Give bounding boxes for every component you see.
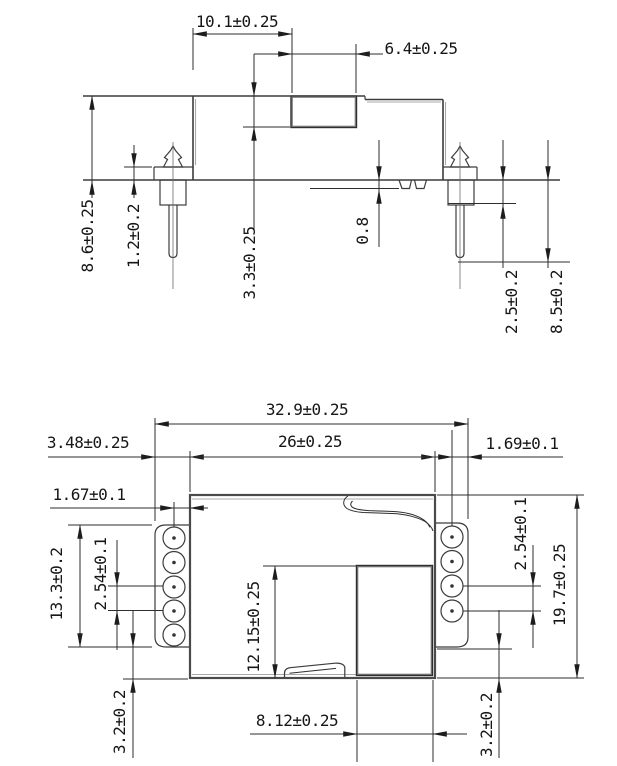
- dim-label-hole-to-edge-right: 1.69±0.1: [485, 434, 558, 453]
- dim-label-tab-span: 13.3±0.2: [47, 547, 66, 620]
- dim-label-pin-pitch-left: 2.54±0.1: [91, 537, 110, 610]
- top-recess-block: [292, 97, 357, 128]
- dim-label-body-depth: 19.7±0.25: [550, 544, 569, 626]
- drawing-page: 10.1±0.25 6.4±0.25 8.6±0.25 1.2±0.2 3.3±…: [0, 0, 617, 766]
- dim-label-chamber-width: 8.12±0.25: [256, 711, 338, 730]
- dim-label-bottom-clearance-left: 3.2±0.2: [110, 690, 129, 754]
- bottom-boss-tabs: [399, 180, 427, 189]
- dim-label-body-width: 26±0.25: [278, 432, 342, 451]
- left-mounting-pin: [160, 142, 186, 289]
- sensor-chamber: [357, 566, 432, 675]
- technical-drawing: 10.1±0.25 6.4±0.25 8.6±0.25 1.2±0.2 3.3±…: [0, 0, 617, 766]
- bottom-view: 32.9±0.25 3.48±0.25 26±0.25 1.69±0.1 1.6…: [47, 400, 584, 762]
- dim-label-tab-left-offset: 3.48±0.25: [47, 433, 129, 452]
- dim-label-chamber-depth: 12.15±0.25: [244, 581, 263, 672]
- side-view-dimension-labels: 10.1±0.25 6.4±0.25 8.6±0.25 1.2±0.2 3.3±…: [78, 12, 566, 334]
- dim-label-overall-width: 32.9±0.25: [266, 400, 348, 419]
- dim-label-hole-to-edge-left: 1.67±0.1: [52, 485, 125, 504]
- right-mounting-pin: [448, 142, 474, 289]
- dim-label-overall-height: 8.6±0.25: [78, 199, 97, 272]
- side-view-dimension-lines: [92, 28, 570, 268]
- module-body-outline: [83, 96, 560, 189]
- right-pin-holes: [441, 526, 463, 622]
- dim-label-pin-pitch-right: 2.54±0.1: [511, 497, 530, 570]
- dim-label-block-width: 6.4±0.25: [384, 39, 457, 58]
- side-elevation-view: 10.1±0.25 6.4±0.25 8.6±0.25 1.2±0.2 3.3±…: [78, 12, 570, 334]
- dim-label-recess-depth: 3.3±0.25: [240, 226, 259, 299]
- dim-label-boss-height: 0.8: [353, 217, 372, 244]
- dim-label-flange-height: 1.2±0.2: [124, 204, 143, 268]
- left-pin-holes: [163, 527, 185, 646]
- dim-label-top-width: 10.1±0.25: [196, 12, 278, 31]
- dim-label-shoulder-length: 2.5±0.2: [502, 270, 521, 334]
- bottom-view-outline: [155, 495, 468, 678]
- dim-label-pin-length: 8.5±0.2: [547, 270, 566, 334]
- right-pin-shoulder: [448, 180, 474, 205]
- dim-label-bottom-clearance-right: 3.2±0.2: [477, 693, 496, 757]
